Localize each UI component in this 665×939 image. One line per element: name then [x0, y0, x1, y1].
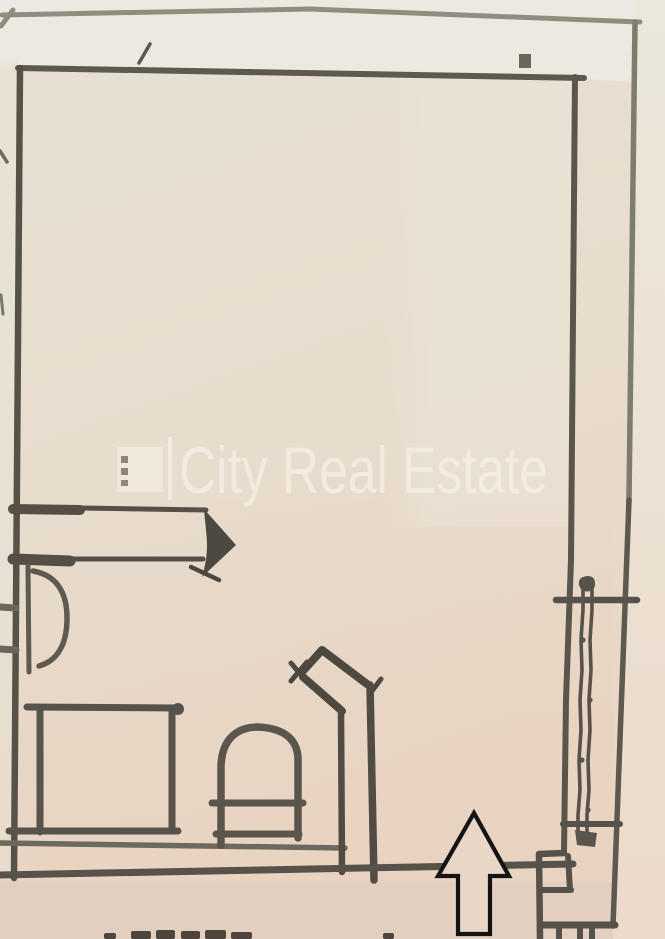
svg-text:City Real Estate: City Real Estate [179, 433, 548, 508]
